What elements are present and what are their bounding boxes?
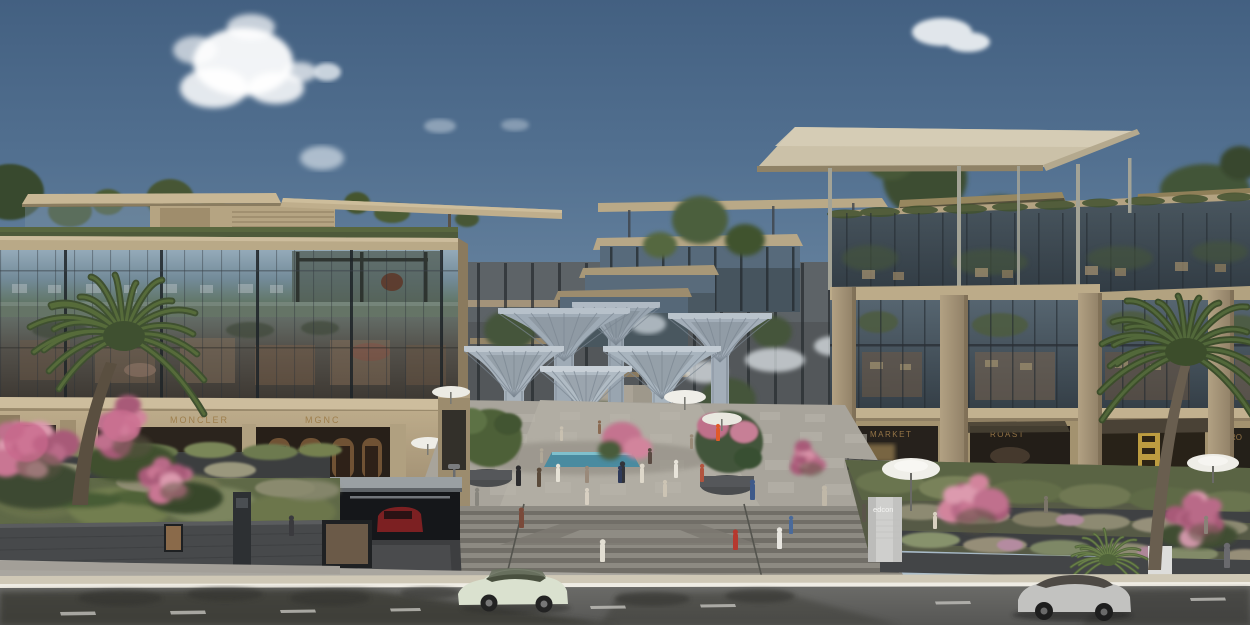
svg-text:edcon: edcon	[873, 505, 893, 514]
svg-text:MARKET: MARKET	[870, 430, 912, 439]
svg-text:MONCLER: MONCLER	[170, 415, 229, 425]
svg-text:MGNC: MGNC	[305, 415, 341, 425]
